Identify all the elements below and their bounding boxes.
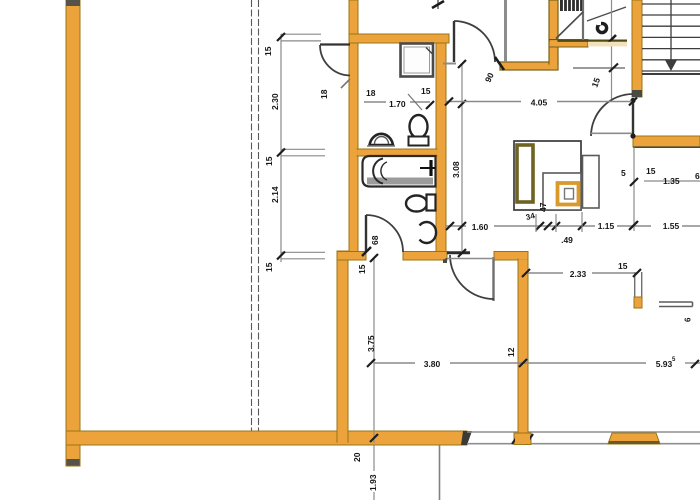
svg-text:3.08: 3.08	[451, 161, 461, 178]
svg-text:4.05: 4.05	[531, 98, 548, 108]
svg-text:15: 15	[263, 46, 273, 56]
svg-text:18: 18	[319, 89, 329, 99]
svg-text:1.60: 1.60	[472, 222, 489, 232]
svg-text:2.33: 2.33	[570, 269, 587, 279]
svg-text:20: 20	[352, 452, 362, 462]
svg-text:2.14: 2.14	[270, 186, 280, 203]
svg-text:1.15: 1.15	[598, 221, 615, 231]
svg-text:47: 47	[538, 202, 548, 212]
svg-text:1.93: 1.93	[368, 474, 378, 491]
svg-text:1.70: 1.70	[389, 99, 406, 109]
svg-text:5: 5	[621, 168, 626, 178]
svg-text:15: 15	[264, 156, 274, 166]
svg-text:15: 15	[357, 264, 367, 274]
svg-text:5.93: 5.93	[656, 359, 673, 369]
svg-text:18: 18	[366, 88, 376, 98]
svg-text:12: 12	[506, 347, 516, 357]
svg-text:15: 15	[264, 262, 274, 272]
svg-text:2.30: 2.30	[270, 93, 280, 110]
svg-text:1.35: 1.35	[663, 176, 680, 186]
svg-text:6: 6	[684, 317, 693, 322]
svg-text:15: 15	[646, 166, 656, 176]
svg-text:15: 15	[421, 86, 431, 96]
svg-text:3.75: 3.75	[366, 335, 376, 352]
svg-text:15: 15	[618, 261, 628, 271]
svg-text:3.80: 3.80	[424, 359, 441, 369]
svg-text:.49: .49	[561, 235, 573, 245]
svg-text:68: 68	[370, 235, 380, 245]
svg-text:1.55: 1.55	[663, 221, 680, 231]
svg-text:6: 6	[695, 171, 700, 181]
